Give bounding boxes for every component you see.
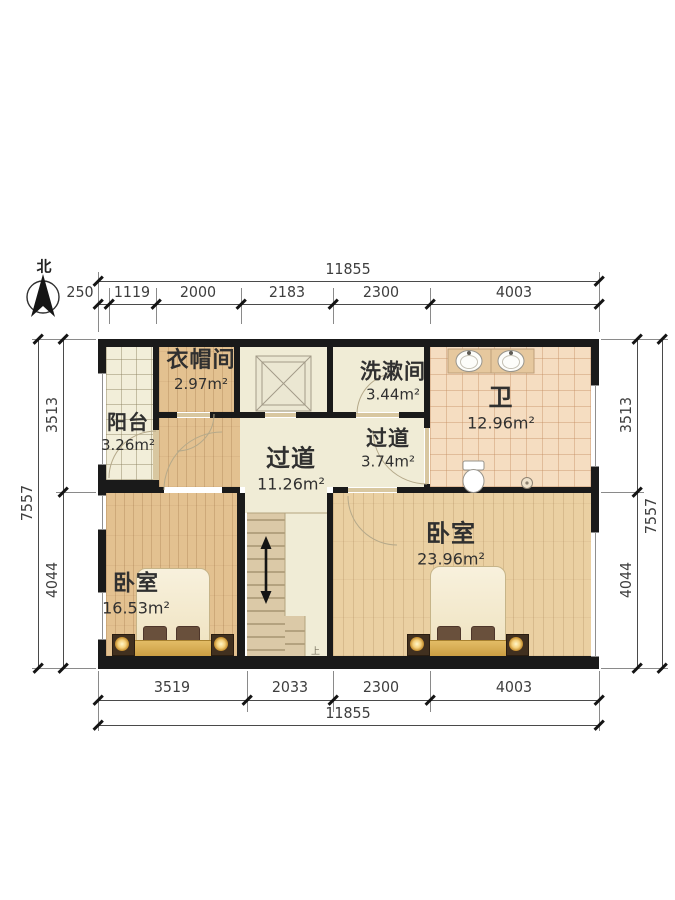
ext-line <box>430 671 431 712</box>
stair-direction-arrow-icon <box>261 536 272 604</box>
floor-drain-icon <box>522 478 533 489</box>
room-label-cloakroom: 衣帽间 2.97m² <box>166 349 235 393</box>
dim-line <box>98 725 599 726</box>
ext-line <box>241 288 242 324</box>
dim-right-total: 7557 <box>642 498 660 534</box>
ext-line <box>333 288 334 324</box>
room-label-bedroom-left: 卧室 16.53m² <box>102 572 170 617</box>
ext-line <box>109 288 110 324</box>
dim-left-seg-1: 4044 <box>43 562 61 598</box>
toilet-icon <box>463 461 484 493</box>
dim-line <box>38 339 39 668</box>
dim-top-seg-1: 1119 <box>114 283 150 301</box>
dim-bottom-seg-2: 2300 <box>363 678 399 696</box>
dim-left-total: 7557 <box>18 485 36 521</box>
dim-bottom-seg-1: 2033 <box>272 678 308 696</box>
room-label-balcony: 阳台 3.26m² <box>101 412 155 454</box>
dim-line <box>98 700 599 701</box>
dim-line <box>63 339 64 668</box>
room-label-bedroom-right: 卧室 23.96m² <box>417 521 485 568</box>
dim-right-seg-0: 3513 <box>617 397 635 433</box>
ext-line <box>430 288 431 324</box>
elevator-icon <box>256 356 311 411</box>
dim-line <box>98 304 599 305</box>
ext-line <box>156 288 157 324</box>
floor-plan: 衣帽间 2.97m² 阳台 3.26m² 洗漱间 3.44m² 卫 12.96m… <box>0 0 675 900</box>
dim-bottom-seg-0: 3519 <box>154 678 190 696</box>
dim-right-seg-1: 4044 <box>617 562 635 598</box>
dim-top-seg-5: 4003 <box>496 283 532 301</box>
dim-top-seg-3: 2183 <box>269 283 305 301</box>
dim-bottom-seg-3: 4003 <box>496 678 532 696</box>
room-label-bathroom: 卫 12.96m² <box>467 385 535 432</box>
north-arrow-icon <box>27 274 59 317</box>
stairs-up-label: 上 <box>311 644 320 657</box>
dim-bottom-total: 11855 <box>325 704 370 722</box>
dim-top-seg-0: 250 <box>66 283 93 301</box>
dim-line <box>98 281 599 282</box>
north-label: 北 <box>36 256 51 277</box>
ext-line <box>247 671 248 712</box>
dim-left-seg-0: 3513 <box>43 397 61 433</box>
room-label-washroom: 洗漱间 3.44m² <box>360 360 426 403</box>
room-label-hallway-small: 过道 3.74m² <box>361 427 415 470</box>
room-label-hallway-main: 过道 11.26m² <box>257 446 325 493</box>
sink-icon <box>448 349 534 373</box>
dim-top-seg-4: 2300 <box>363 283 399 301</box>
dim-line <box>662 339 663 668</box>
dim-line <box>637 339 638 668</box>
dim-top-seg-2: 2000 <box>180 283 216 301</box>
dim-top-total: 11855 <box>325 260 370 278</box>
stair-treads <box>247 513 327 656</box>
